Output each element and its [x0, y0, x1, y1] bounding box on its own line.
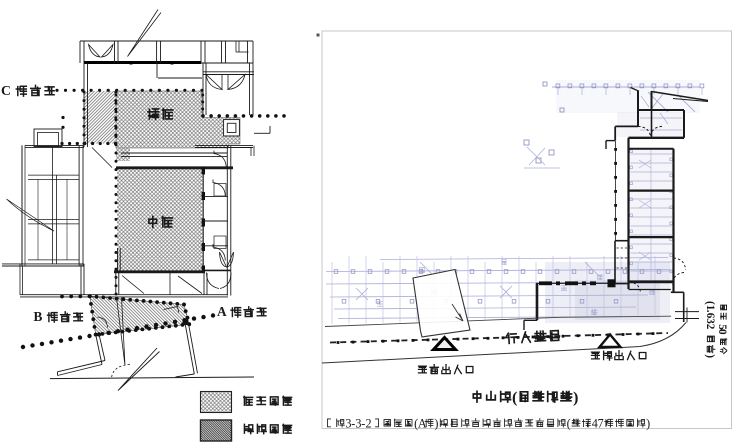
svg-text:2: 2 [366, 416, 372, 430]
svg-text:2: 2 [704, 324, 716, 330]
svg-text:A: A [217, 304, 227, 319]
svg-text:): ) [704, 354, 716, 358]
svg-text:7: 7 [598, 416, 604, 430]
svg-text:): ) [646, 416, 650, 430]
svg-text:(: ( [512, 388, 517, 407]
svg-text:(: ( [567, 416, 571, 430]
svg-text:B: B [34, 309, 43, 324]
svg-text:C: C [1, 83, 11, 98]
svg-text:): ) [434, 416, 438, 430]
svg-text:): ) [573, 388, 578, 407]
svg-text:A: A [418, 416, 427, 430]
svg-text:0: 0 [716, 329, 728, 335]
